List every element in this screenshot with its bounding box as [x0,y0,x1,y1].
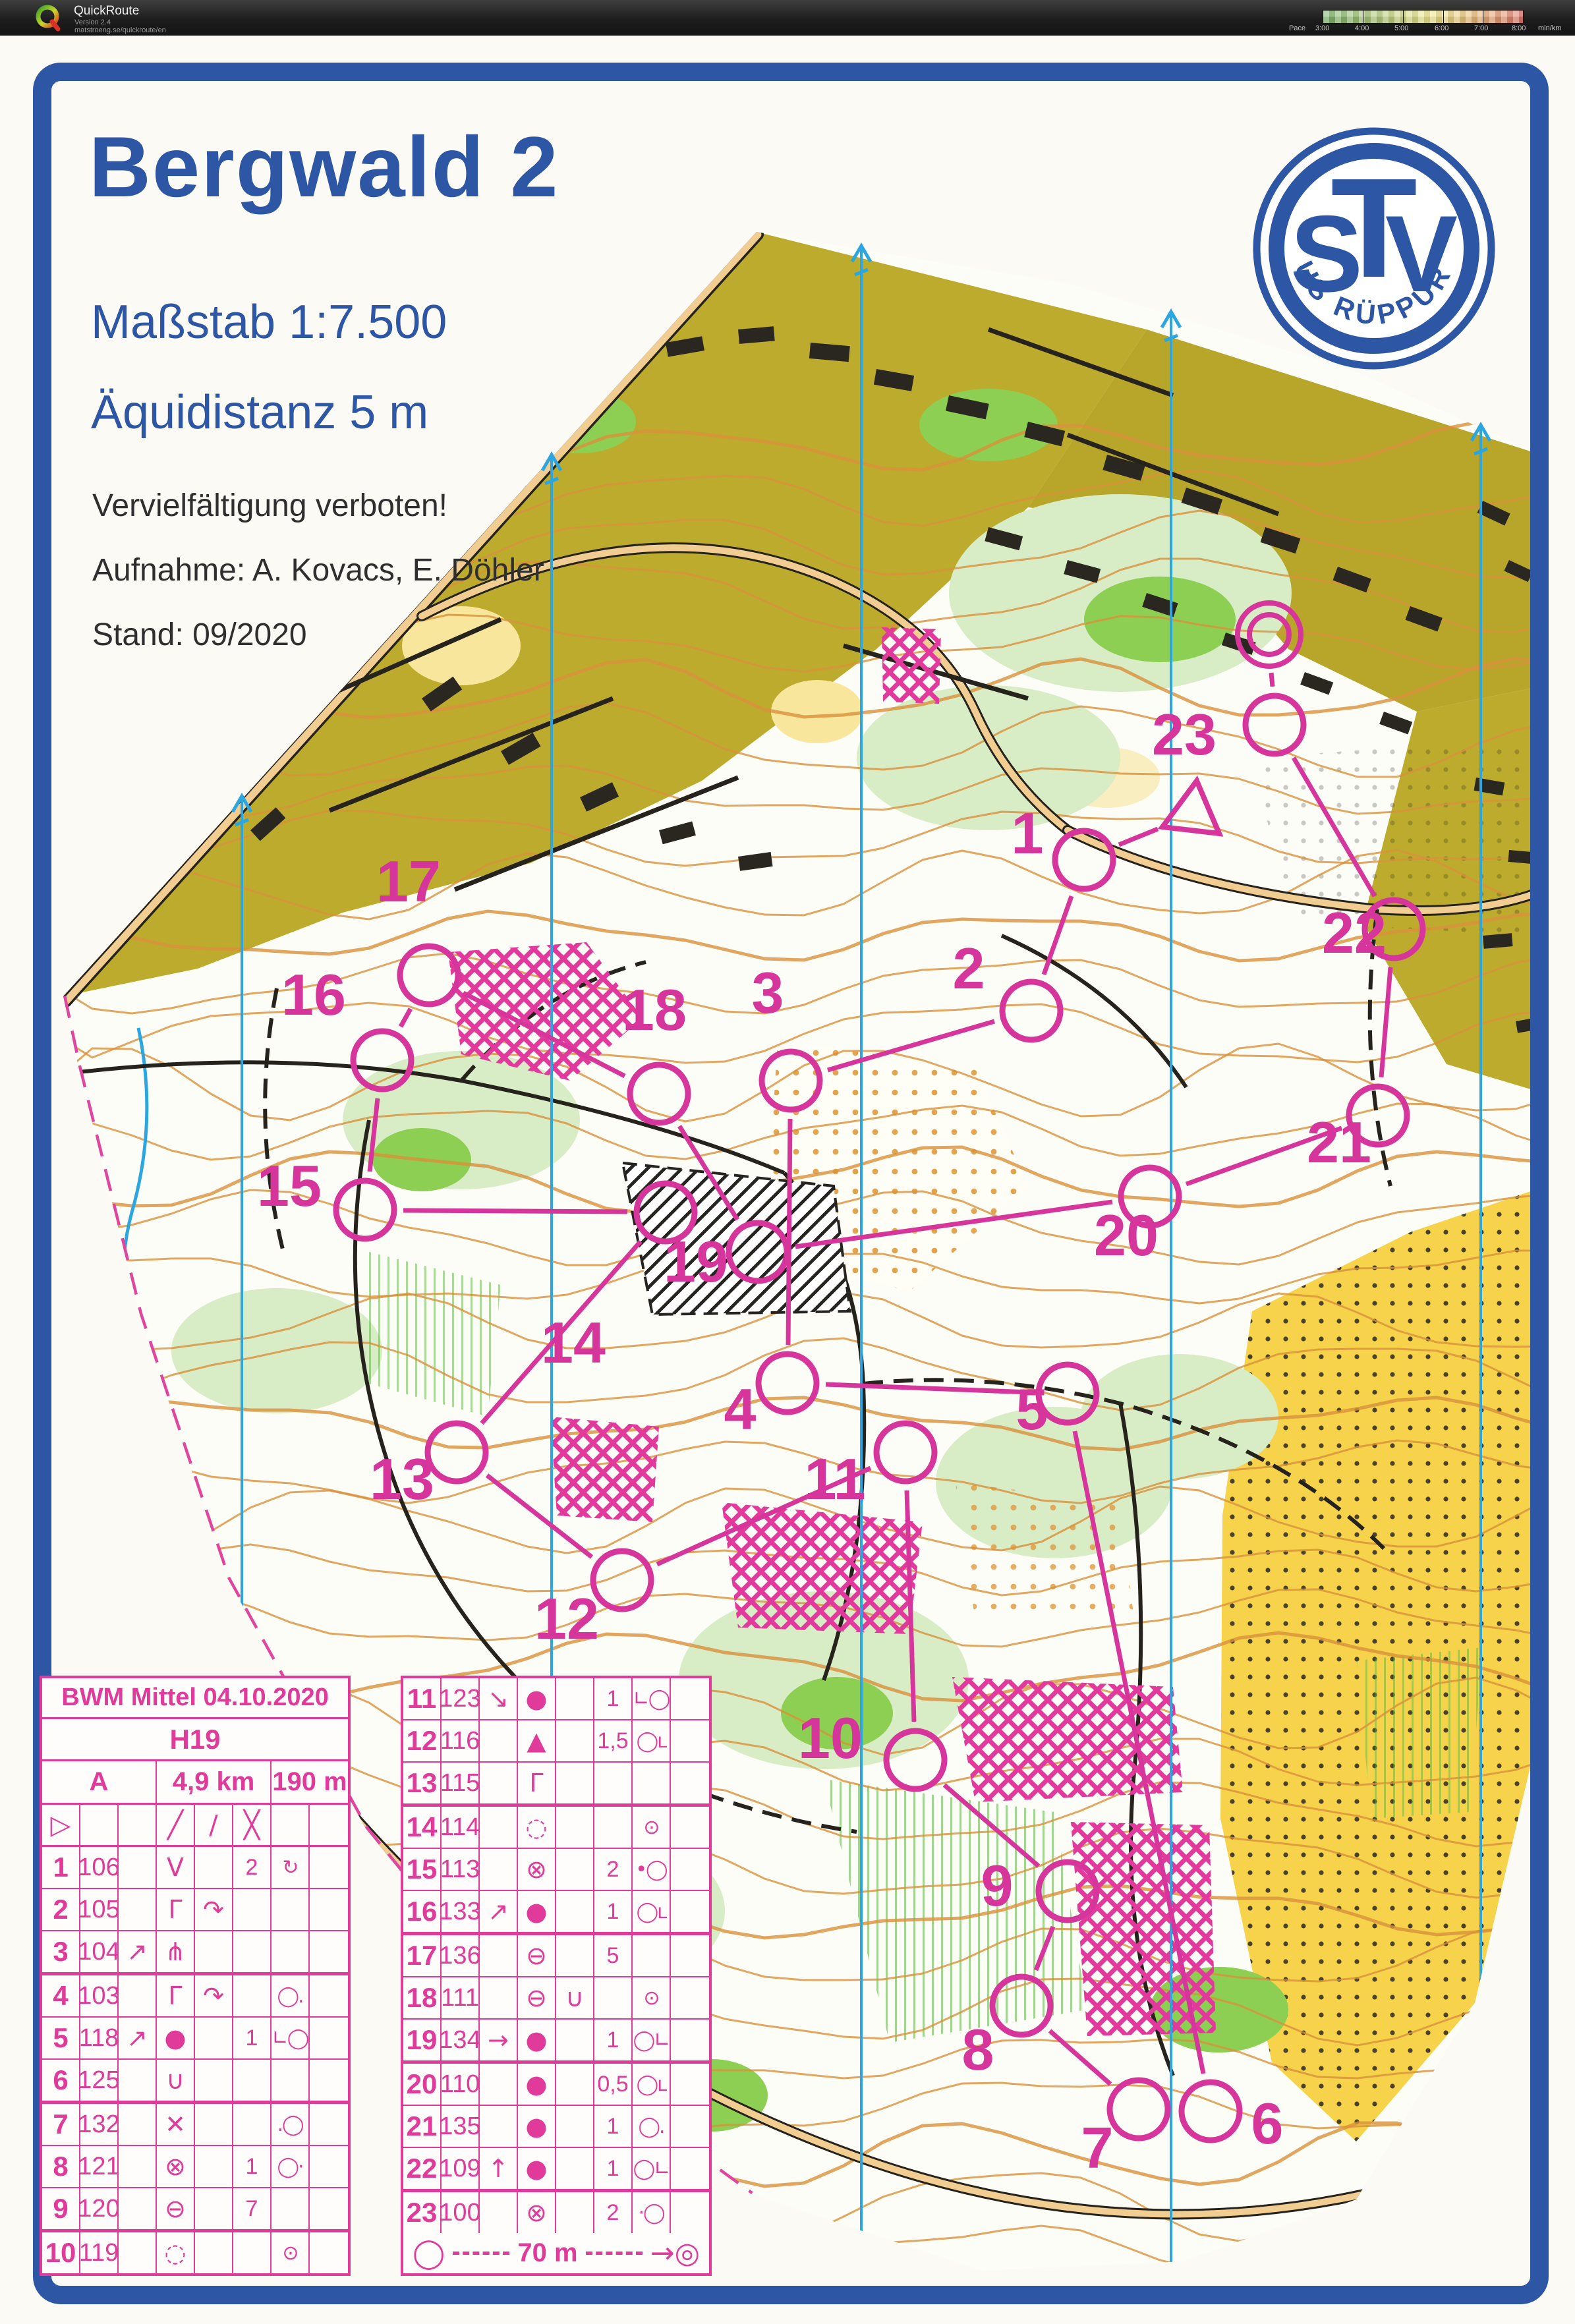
control-description-row: 14 114 ◌ ⊙ [403,1807,709,1849]
control-number: 22 [1322,900,1387,965]
control-description-row: 19 134 → ● 1 ◯∟ [403,2020,709,2064]
control-description-row: 23 100 ⊗ 2 ·◯ [403,2192,709,2233]
control-rows-11-23: 11 123 ↘ ● 1 ∟◯ 12 116 ▲ 1,5 ◯ʟ 13 115 Γ [403,1678,709,2233]
control-number: 4 [724,1376,757,1442]
logo-letter-t: T [1331,148,1417,307]
control-description-row: 16 133 ↗ ● 1 ◯ʟ [403,1891,709,1935]
control-description-row: 20 110 ● 0,5 ◯ʟ [403,2064,709,2106]
control-rows-1-10: 1 106 V 2 ↻ 2 105 Γ ↷ 3 104 ↗ ⋔ [42,1847,348,2273]
club-logo: S V T TUS RÜPPURR [1242,119,1506,382]
map-edition: Stand: 09/2020 [92,617,307,653]
control-number: 2 [953,936,985,1001]
control-description-row: 9 120 ⊖ 7 [42,2188,348,2232]
control-description-row: 4 103 Γ ↷ ◯. [42,1975,348,2018]
control-number: 6 [1251,2091,1284,2156]
control-description-row: 17 136 ⊖ 5 [403,1935,709,1977]
control-number: 20 [1094,1203,1159,1268]
control-number: 18 [622,977,687,1042]
control-description-row: 12 116 ▲ 1,5 ◯ʟ [403,1720,709,1763]
symbols-header-row: ▷ ╱ ∕ ╳ [42,1805,348,1847]
start-symbol: ▷ [42,1805,80,1845]
control-description-row: 5 118 ↗ ● 1 ∟◯ [42,2018,348,2060]
course-climb: 190 m [272,1761,348,1803]
control-description-row: 10 119 ◌ ⊙ [42,2232,348,2273]
building [1508,850,1535,864]
control-number: 15 [257,1153,322,1218]
finish-glyph: →◎ [650,2236,700,2270]
control-description-row: 15 113 ⊗ 2 •◯ [403,1849,709,1891]
course-leg [788,1119,790,1345]
finish-row: ◯ 70 m →◎ [403,2233,709,2273]
finish-distance: 70 m [517,2238,577,2268]
copyright-notice: Vervielfältigung verboten! [92,488,447,524]
map-title: Bergwald 2 [89,117,559,216]
surveyors: Aufnahme: A. Kovacs, E. Döhler [92,552,544,588]
control-number: 10 [798,1705,863,1771]
building [1483,933,1513,949]
control-description-row: 6 125 ∪ [42,2060,348,2104]
control-number: 19 [664,1229,728,1294]
route-start-glyph: ◯ [413,2236,445,2270]
control-number: 8 [962,2017,994,2082]
control-number: 5 [1016,1376,1048,1442]
control-description-row: 8 121 ⊗ 1 ◯· [42,2146,348,2188]
control-number: 12 [534,1586,599,1651]
control-description-row: 21 135 ● 1 ◯. [403,2106,709,2148]
map-equidistance: Äquidistanz 5 m [91,385,428,439]
control-number: 13 [370,1446,434,1512]
quickroute-window: QuickRoute Version 2.4 matstroeng.se/qui… [0,0,1575,2324]
course-leg [1271,673,1273,687]
control-description-row: 7 132 ✕ .◯ [42,2104,348,2146]
control-number: 9 [981,1853,1014,1918]
control-number: 14 [541,1310,606,1375]
control-number: 17 [376,849,441,914]
map-scale: Maßstab 1:7.500 [91,295,447,349]
control-number: 16 [281,962,346,1027]
event-name: BWM Mittel 04.10.2020 [42,1678,348,1719]
control-number: 23 [1152,702,1217,767]
course-class: H19 [42,1719,348,1761]
building [738,326,775,344]
course-length: 4,9 km [157,1761,272,1803]
control-description-row: 1 106 V 2 ↻ [42,1847,348,1889]
course-letter: A [42,1761,157,1803]
course-summary: A 4,9 km 190 m [42,1761,348,1805]
control-descriptions-left: BWM Mittel 04.10.2020 H19 A 4,9 km 190 m… [40,1676,351,2276]
course-leg [403,1210,627,1212]
control-number: 3 [752,960,784,1025]
control-descriptions-right: 11 123 ↘ ● 1 ∟◯ 12 116 ▲ 1,5 ◯ʟ 13 115 Γ [401,1676,712,2276]
control-number: 11 [804,1446,865,1512]
control-description-row: 18 111 ⊖ ∪ ⊙ [403,1977,709,2020]
control-description-row: 11 123 ↘ ● 1 ∟◯ [403,1678,709,1720]
control-number: 7 [1081,2115,1114,2180]
control-number: 1 [1012,801,1044,866]
control-description-row: 13 115 Γ [403,1763,709,1807]
control-description-row: 22 109 ↑ ● 1 ◯∟ [403,2148,709,2192]
control-number: 21 [1307,1110,1371,1175]
control-description-row: 2 105 Γ ↷ [42,1889,348,1931]
control-description-row: 3 104 ↗ ⋔ [42,1931,348,1975]
